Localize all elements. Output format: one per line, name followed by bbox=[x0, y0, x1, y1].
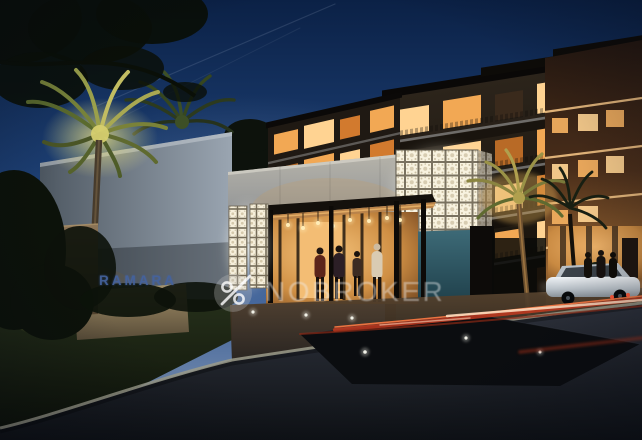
pedestrians-near-car bbox=[584, 250, 617, 278]
property-photo: RAMARA NOBROKER bbox=[0, 0, 642, 440]
project-sign-text: RAMARA bbox=[86, 273, 190, 288]
lattice-panels bbox=[222, 198, 274, 296]
rendered-scene bbox=[0, 0, 642, 440]
